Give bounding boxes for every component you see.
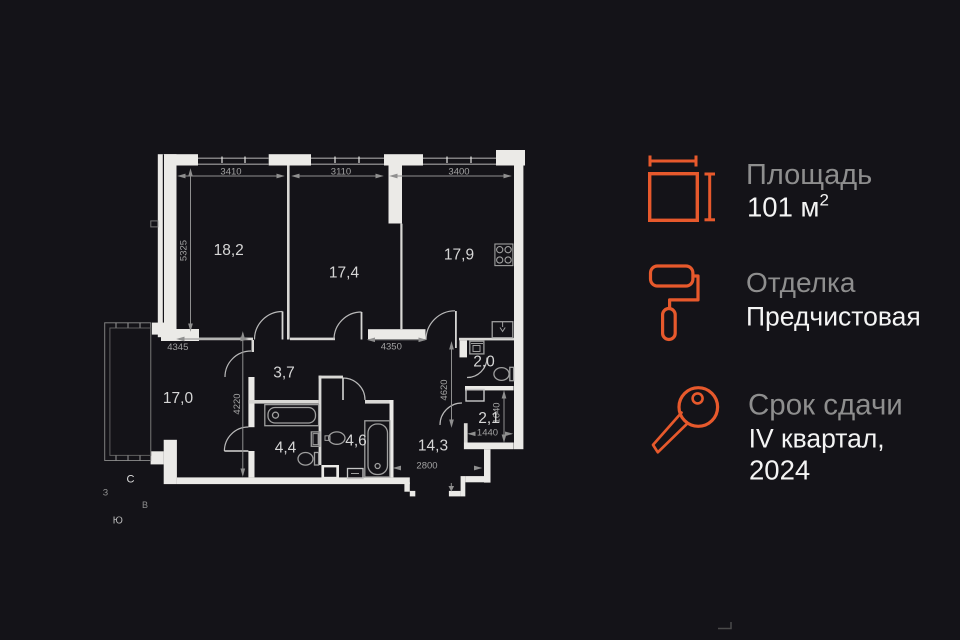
svg-text:С: С [127, 474, 135, 486]
svg-text:З: З [103, 488, 108, 498]
svg-text:101 м2: 101 м2 [747, 191, 829, 223]
svg-text:3110: 3110 [331, 166, 351, 177]
svg-text:14,3: 14,3 [418, 437, 448, 454]
svg-text:1440: 1440 [477, 427, 498, 438]
svg-text:17,9: 17,9 [444, 247, 474, 264]
svg-text:4350: 4350 [381, 342, 402, 353]
svg-text:В: В [142, 500, 148, 510]
svg-text:17,4: 17,4 [329, 265, 360, 282]
svg-text:Отделка: Отделка [746, 267, 856, 298]
svg-text:IV квартал,: IV квартал, [749, 424, 885, 454]
svg-text:2800: 2800 [416, 460, 437, 471]
svg-text:4345: 4345 [167, 342, 188, 353]
svg-text:3,7: 3,7 [273, 365, 295, 382]
svg-text:2024: 2024 [749, 455, 810, 486]
svg-text:4620: 4620 [439, 379, 450, 400]
svg-text:Площадь: Площадь [746, 159, 872, 191]
svg-text:4,4: 4,4 [275, 439, 297, 456]
svg-text:Срок сдачи: Срок сдачи [748, 388, 903, 421]
svg-text:17,0: 17,0 [163, 390, 194, 407]
svg-text:2,1: 2,1 [478, 410, 500, 427]
svg-text:4220: 4220 [232, 393, 243, 414]
svg-text:Ю: Ю [113, 516, 123, 527]
svg-text:18,2: 18,2 [214, 242, 244, 259]
svg-text:3410: 3410 [220, 166, 241, 177]
svg-text:3400: 3400 [448, 166, 469, 177]
svg-text:2,0: 2,0 [473, 353, 495, 370]
svg-text:4,6: 4,6 [345, 432, 367, 449]
svg-text:5325: 5325 [179, 240, 190, 261]
svg-text:Предчистовая: Предчистовая [746, 301, 921, 331]
